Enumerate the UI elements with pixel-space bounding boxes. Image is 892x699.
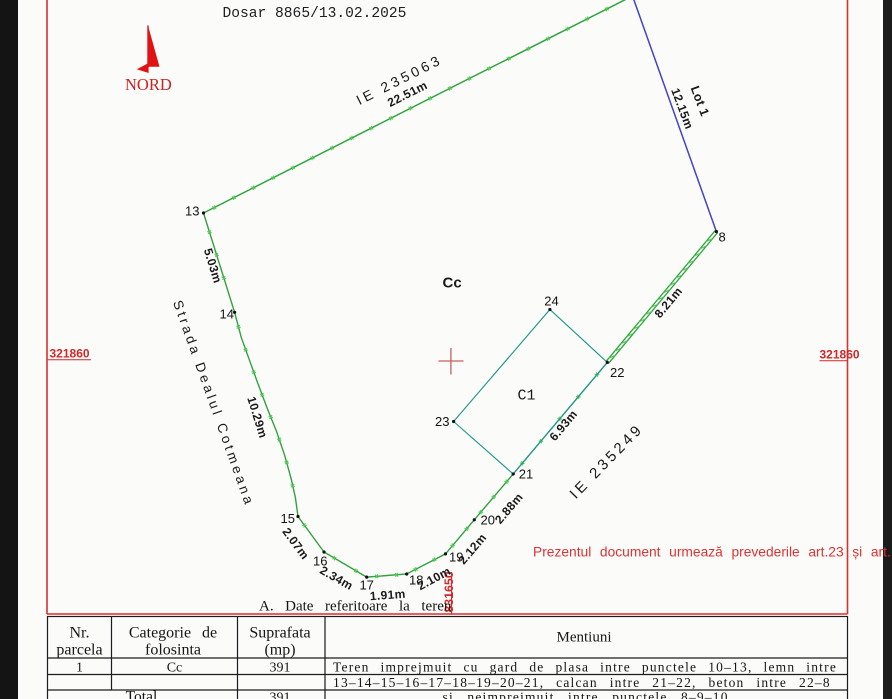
svg-text:Nr.: Nr. bbox=[70, 625, 90, 642]
svg-text:NORD: NORD bbox=[125, 75, 172, 94]
svg-text:15: 15 bbox=[281, 511, 295, 526]
svg-text:Prezentul document urmează pre: Prezentul document urmează prevederile a… bbox=[533, 545, 891, 560]
svg-text:A. Date referitoare la teren: A. Date referitoare la teren bbox=[259, 599, 452, 615]
svg-text:Strada Dealul Cotmeana: Strada Dealul Cotmeana bbox=[170, 298, 257, 509]
svg-text:IE 235249: IE 235249 bbox=[566, 420, 647, 502]
svg-text:23: 23 bbox=[435, 414, 449, 429]
svg-text:321860: 321860 bbox=[50, 347, 90, 361]
svg-text:6.93m: 6.93m bbox=[547, 407, 581, 443]
svg-text:14: 14 bbox=[220, 307, 234, 322]
svg-text:10.29m: 10.29m bbox=[244, 395, 270, 440]
svg-text:21: 21 bbox=[519, 467, 533, 482]
svg-text:321860: 321860 bbox=[820, 348, 860, 362]
svg-text:2.07m: 2.07m bbox=[279, 525, 312, 562]
svg-text:1: 1 bbox=[76, 661, 83, 676]
svg-text:folosinta: folosinta bbox=[145, 642, 201, 659]
svg-text:13: 13 bbox=[185, 204, 199, 219]
svg-text:22: 22 bbox=[610, 365, 624, 380]
svg-text:13–14–15–16–17–18–19–20–21, ca: 13–14–15–16–17–18–19–20–21, calcan intre… bbox=[333, 675, 831, 690]
svg-text:24: 24 bbox=[544, 294, 558, 309]
svg-text:Categorie de: Categorie de bbox=[129, 625, 217, 642]
svg-text:parcela: parcela bbox=[56, 642, 102, 659]
svg-text:8: 8 bbox=[719, 230, 726, 245]
svg-text:Suprafata: Suprafata bbox=[249, 625, 310, 642]
svg-text:2.88m: 2.88m bbox=[492, 490, 526, 526]
svg-text:17: 17 bbox=[359, 578, 373, 593]
svg-text:Cc: Cc bbox=[443, 275, 462, 292]
svg-text:16: 16 bbox=[313, 554, 327, 569]
svg-text:C1: C1 bbox=[518, 388, 536, 405]
svg-text:8.21m: 8.21m bbox=[652, 284, 686, 320]
svg-text:Mentiuni: Mentiuni bbox=[557, 630, 612, 646]
svg-text:19: 19 bbox=[449, 550, 463, 565]
svg-text:si neimprejmuit intre punctele: si neimprejmuit intre punctele 8–9–10 bbox=[443, 690, 729, 699]
svg-text:5.03m: 5.03m bbox=[201, 247, 225, 285]
svg-text:(mp): (mp) bbox=[264, 642, 295, 659]
svg-text:391: 391 bbox=[270, 691, 291, 699]
svg-text:391: 391 bbox=[270, 661, 291, 676]
svg-text:20: 20 bbox=[481, 513, 495, 528]
svg-text:Total: Total bbox=[126, 689, 158, 699]
svg-text:Teren imprejmuit cu gard de pl: Teren imprejmuit cu gard de plasa intre … bbox=[333, 660, 837, 675]
svg-text:Dosar 8865/13.02.2025: Dosar 8865/13.02.2025 bbox=[223, 6, 407, 22]
svg-text:Cc: Cc bbox=[167, 661, 183, 676]
svg-text:18: 18 bbox=[409, 573, 423, 588]
